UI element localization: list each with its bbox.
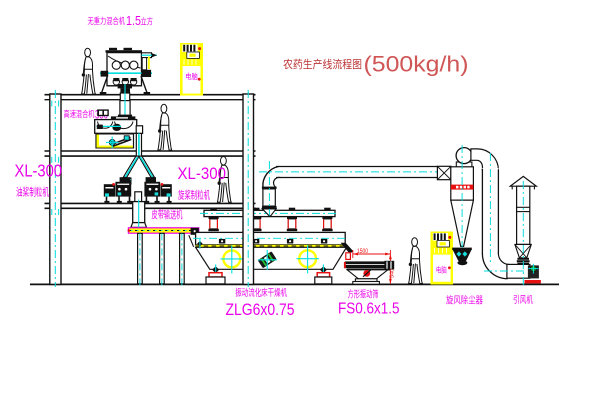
svg-text:540: 540 [390, 269, 396, 278]
svg-text:电脑: 电脑 [185, 72, 198, 81]
svg-text:XL-300: XL-300 [15, 161, 63, 181]
svg-text:FS0.6x1.5: FS0.6x1.5 [338, 301, 400, 318]
svg-text:(500kg/h): (500kg/h) [364, 52, 469, 77]
svg-text:高速混合机: 高速混合机 [64, 109, 95, 119]
svg-text:旋风除尘器: 旋风除尘器 [446, 295, 483, 307]
svg-text:立方: 立方 [141, 17, 154, 27]
svg-text:农药生产线流程图: 农药生产线流程图 [283, 57, 362, 71]
svg-text:油桨制粒机: 油桨制粒机 [16, 186, 49, 199]
svg-text:ZLG6x0.75: ZLG6x0.75 [226, 300, 295, 319]
svg-text:引风机: 引风机 [513, 294, 533, 306]
svg-text:无重力混合机: 无重力混合机 [88, 16, 126, 26]
svg-text:旋桨制粒机: 旋桨制粒机 [178, 189, 210, 202]
svg-text:XL-300: XL-300 [178, 165, 227, 183]
svg-text:电脑: 电脑 [436, 265, 447, 274]
svg-text:振动流化床干燥机: 振动流化床干燥机 [235, 287, 287, 299]
svg-text:皮带输送机: 皮带输送机 [152, 208, 183, 221]
svg-text:方形振动筛: 方形振动筛 [348, 288, 379, 300]
svg-text:1500: 1500 [357, 249, 369, 255]
svg-text:1.5: 1.5 [126, 14, 141, 28]
